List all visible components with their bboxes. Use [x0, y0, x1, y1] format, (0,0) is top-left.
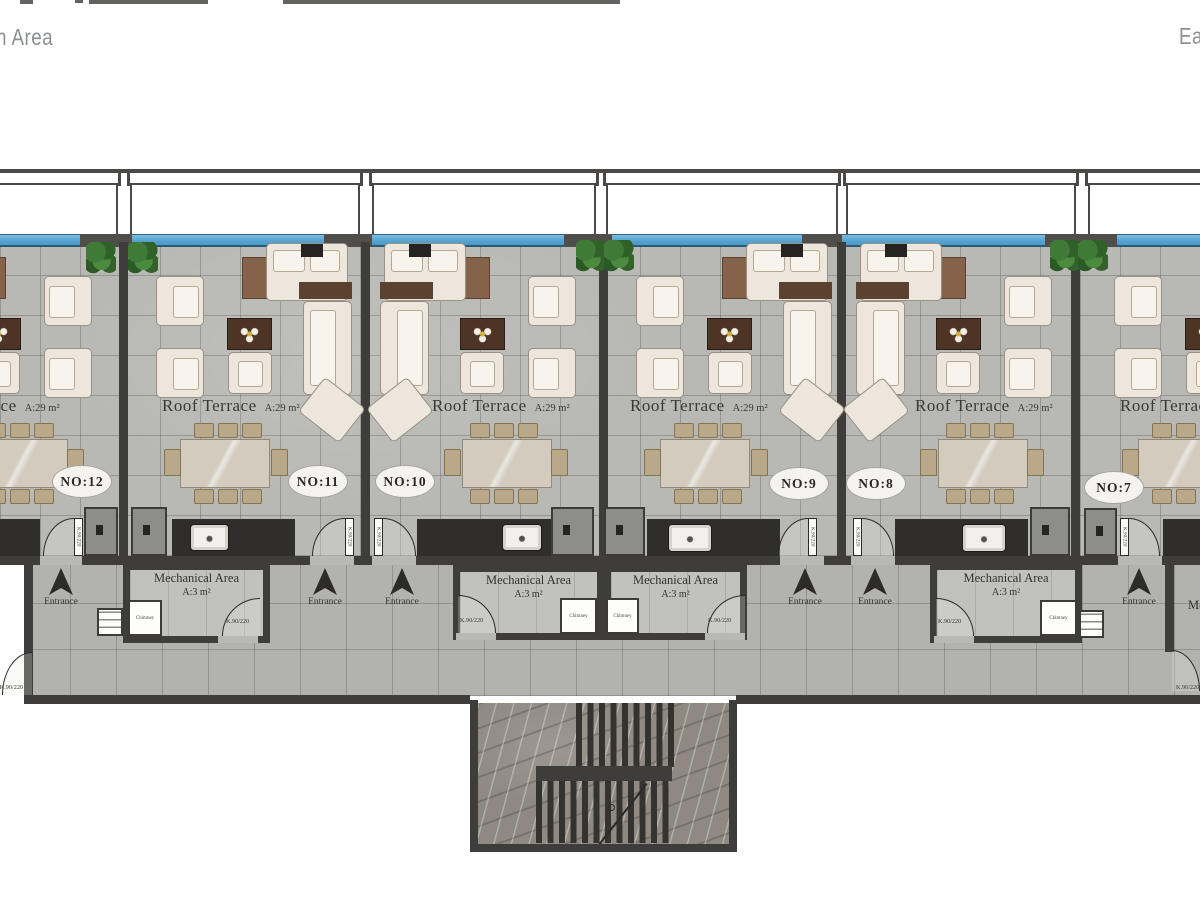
kitchenette-appliance	[885, 244, 907, 257]
dining-chair	[10, 489, 30, 504]
armchair-cushion	[1131, 286, 1157, 318]
mechanical-area-label: Mechanical Area	[453, 573, 604, 588]
sofa-cushion	[397, 310, 423, 386]
kitchen-counter	[647, 519, 780, 556]
mechanical-area-label: Mechanical Area	[1188, 598, 1200, 613]
dining-chair	[10, 423, 30, 438]
dining-chair	[194, 489, 214, 504]
faucet-icon	[1096, 526, 1103, 536]
coffee-table	[460, 318, 505, 350]
dining-chair	[0, 423, 6, 438]
sofa-cushion	[310, 310, 336, 386]
plant-icon	[604, 240, 634, 273]
balcony-parapet-box	[1088, 183, 1200, 236]
armchair	[1004, 276, 1052, 326]
ottoman-cushion	[238, 361, 263, 387]
stair-direction-marker	[608, 804, 615, 811]
dining-chair	[674, 489, 694, 504]
dining-chair	[1152, 423, 1172, 438]
mechanical-area-label: Mechanical Area	[123, 571, 270, 586]
mechanical-room-wall	[604, 565, 747, 572]
dining-chair	[994, 489, 1014, 504]
door-leaf: K.90/220	[345, 518, 354, 556]
plant-icon	[86, 242, 116, 275]
door-size-label: K.90/220	[347, 527, 353, 546]
ottoman	[0, 352, 20, 394]
dining-chair	[920, 449, 937, 476]
kitchenette-counter	[380, 282, 433, 299]
dining-chair	[644, 449, 661, 476]
coffee-table	[1185, 318, 1200, 350]
chimney-box: Chimney	[128, 600, 162, 636]
roof-terrace-label-text: Roof Terrace	[432, 396, 527, 415]
faucet-icon	[1042, 525, 1049, 535]
entrance-label: Entrance	[293, 597, 357, 609]
unit-divider-wall	[119, 242, 128, 556]
side-table	[464, 257, 490, 299]
armchair-cushion	[173, 358, 199, 390]
dining-table	[1138, 439, 1200, 488]
utility-box	[551, 507, 594, 556]
dining-chair	[194, 423, 214, 438]
kitchen-counter	[0, 519, 40, 556]
kitchenette-counter	[856, 282, 909, 299]
dining-chair	[518, 423, 538, 438]
ottoman-cushion	[718, 361, 743, 387]
door-opening	[780, 556, 824, 565]
door-size-label: K.90/220	[460, 617, 483, 624]
mechanical-room-wall	[123, 563, 270, 570]
sofa-cushion	[790, 310, 816, 386]
side-table	[722, 257, 748, 299]
entrance-label: Entrance	[370, 597, 434, 609]
roof-terrace-label: Roof TerraceA:29 m²	[162, 396, 300, 416]
unit-badge-no-7: NO:7	[1084, 471, 1144, 504]
sink	[962, 524, 1006, 552]
chimney-box: Chimney	[560, 598, 597, 634]
roof-eave-line	[0, 169, 1200, 173]
dining-chair	[722, 489, 742, 504]
dining-chair	[551, 449, 568, 476]
stairwell-wall	[470, 844, 737, 852]
dining-chair	[470, 489, 490, 504]
roof-terrace-area-text: A:29 m²	[535, 403, 570, 414]
door-size-label: K.90/220	[1176, 684, 1199, 691]
door-opening	[372, 556, 416, 565]
roof-terrace-area-text: A:29 m²	[733, 403, 768, 414]
door-leaf: K.90/220	[853, 518, 862, 556]
armchair-cushion	[49, 358, 75, 390]
roof-terrace-label: Roof TerraceA:29 m²	[630, 396, 768, 416]
top-edge-fragment	[89, 0, 208, 4]
mechanical-area-size: A:3 m²	[123, 587, 270, 598]
roof-terrace-label-text: Roof Terrace	[1120, 396, 1200, 415]
sofa-cushion	[873, 310, 899, 386]
kitchenette-appliance	[409, 244, 431, 257]
dining-chair	[0, 489, 6, 504]
door-size-label: K.90/220	[708, 617, 731, 624]
armchair	[636, 276, 684, 326]
balcony-connector-stub	[360, 172, 363, 186]
balcony-parapet-box	[130, 183, 360, 236]
dining-table	[938, 439, 1028, 488]
unit-divider-wall	[837, 242, 846, 556]
door-size-label: K.90/220	[1122, 527, 1128, 546]
faucet-icon	[616, 525, 623, 535]
door-leaf: K.90/220	[1120, 518, 1129, 556]
armchair-cushion	[653, 286, 679, 318]
dining-chair	[994, 423, 1014, 438]
armchair	[156, 276, 204, 326]
door-opening	[1118, 556, 1162, 565]
dining-chair	[218, 423, 238, 438]
armchair-cushion	[1131, 358, 1157, 390]
mechanical-room-wall	[453, 565, 604, 572]
balcony-connector-stub	[596, 172, 599, 186]
dining-chair	[698, 423, 718, 438]
balcony-parapet-box	[372, 183, 596, 236]
top-edge-fragment	[283, 0, 620, 4]
balcony-connector-stub	[603, 172, 606, 186]
roof-terrace-label: Roof TerraceA:29 m²	[915, 396, 1053, 416]
armchair	[636, 348, 684, 398]
entrance-label: Entrance	[1107, 597, 1171, 609]
balcony-connector-stub	[838, 172, 841, 186]
dining-chair	[242, 423, 262, 438]
door-opening	[310, 556, 354, 565]
dining-chair	[242, 489, 262, 504]
dining-chair	[518, 489, 538, 504]
unit-divider-wall	[361, 242, 370, 556]
balcony-connector-stub	[369, 172, 372, 186]
door-size-label: K.90/220	[76, 527, 82, 546]
kitchenette-counter	[779, 282, 832, 299]
armchair	[156, 348, 204, 398]
ottoman-cushion	[0, 361, 11, 387]
armchair-cushion	[533, 286, 559, 318]
top-edge-fragment	[75, 0, 83, 3]
roof-terrace-label: Roof TerraceA:29 m²	[0, 396, 60, 416]
dining-chair	[470, 423, 490, 438]
balcony-connector-stub	[1076, 172, 1079, 186]
roof-terrace-label-text: Roof Terrace	[162, 396, 257, 415]
stair-landing	[536, 766, 672, 781]
armchair-cushion	[1009, 286, 1035, 318]
door-size-label: K.90/220	[0, 684, 23, 691]
dining-chair	[271, 449, 288, 476]
sink	[502, 524, 542, 551]
plant-icon	[1078, 240, 1108, 273]
armchair	[1114, 276, 1162, 326]
armchair-cushion	[173, 286, 199, 318]
armchair	[1114, 348, 1162, 398]
kitchen-counter	[1163, 519, 1200, 556]
roof-terrace-floor-plan: Roof TerraceA:29 m²NO:12Roof TerraceA:29…	[0, 0, 1200, 900]
door-opening	[456, 633, 496, 640]
balcony-connector-stub	[127, 172, 130, 186]
armchair	[44, 348, 92, 398]
plant-icon	[1050, 240, 1080, 273]
ottoman-cushion	[1196, 361, 1200, 387]
door-size-label: K.90/220	[938, 618, 961, 625]
dining-chair	[751, 449, 768, 476]
armchair-cushion	[533, 358, 559, 390]
dining-chair	[218, 489, 238, 504]
door-leaf: K.90/220	[74, 518, 83, 556]
dining-table	[180, 439, 270, 488]
faucet-icon	[96, 525, 103, 535]
roof-terrace-label: Roof TerraceA:29 m²	[432, 396, 570, 416]
plant-icon	[576, 240, 606, 273]
dining-chair	[34, 423, 54, 438]
dining-chair	[164, 449, 181, 476]
unit-badge-no-12: NO:12	[52, 465, 112, 498]
door-size-label: K.90/220	[810, 527, 816, 546]
roof-terrace-label-text: Roof Terrace	[630, 396, 725, 415]
side-table	[940, 257, 966, 299]
plant-icon	[128, 242, 158, 275]
unit-badge-no-9: NO:9	[769, 467, 829, 500]
balcony-parapet-box	[606, 183, 838, 236]
dining-chair	[698, 489, 718, 504]
entrance-label: Entrance	[773, 597, 837, 609]
side-table	[242, 257, 268, 299]
stairwell-wall	[729, 700, 737, 852]
sofa-pillow	[904, 250, 934, 272]
dining-chair	[1027, 449, 1044, 476]
chimney-box: Chimney	[1040, 600, 1077, 636]
dining-chair	[674, 423, 694, 438]
dining-chair	[1176, 489, 1196, 504]
utility-box	[84, 507, 118, 556]
side-table	[0, 257, 6, 299]
ottoman-cushion	[470, 361, 495, 387]
utility-box	[1030, 507, 1070, 556]
mechanical-room-wall	[930, 563, 1082, 570]
door-leaf: K.90/220	[808, 518, 817, 556]
stair-treads-lower	[536, 781, 672, 843]
mechanical-area-label: Mechanical Area	[604, 573, 747, 588]
armchair-cushion	[653, 358, 679, 390]
corridor-bottom-wall	[736, 695, 1200, 704]
dining-table	[660, 439, 750, 488]
unit-badge-no-11: NO:11	[288, 465, 348, 498]
ottoman	[228, 352, 272, 394]
dining-chair	[34, 489, 54, 504]
door-opening	[705, 633, 745, 640]
dining-chair	[494, 423, 514, 438]
door-leaf: K.90/220	[374, 518, 383, 556]
door-size-label: K.90/220	[226, 618, 249, 625]
balcony-parapet-box	[0, 183, 118, 236]
coffee-table	[0, 318, 21, 350]
coffee-table	[227, 318, 272, 350]
sink	[190, 524, 229, 551]
balcony-connector-stub	[1085, 172, 1088, 186]
balcony-connector-stub	[843, 172, 846, 186]
kitchenette-appliance	[301, 244, 323, 257]
dining-chair	[1152, 489, 1172, 504]
faucet-icon	[563, 525, 570, 535]
roof-terrace-area-text: A:29 m²	[265, 403, 300, 414]
floor-plan-page: n Area Ea Roof TerraceA:29 m²NO:12Roof T…	[0, 0, 1200, 900]
chimney-vent-box	[1079, 610, 1104, 638]
roof-terrace-label-text: Roof Terrace	[0, 396, 17, 415]
ottoman	[708, 352, 752, 394]
coffee-table	[936, 318, 981, 350]
unit-badge-no-10: NO:10	[375, 465, 435, 498]
mechanical-area-size: A:3 m²	[930, 587, 1082, 598]
door-size-label: K.90/220	[855, 527, 861, 546]
sink	[668, 524, 712, 552]
stair-treads-upper	[576, 703, 676, 767]
dining-chair	[946, 423, 966, 438]
utility-box	[604, 507, 645, 556]
corridor-bottom-wall	[24, 695, 470, 704]
balcony-connector-stub	[118, 172, 121, 186]
door-opening	[851, 556, 895, 565]
sofa-pillow	[428, 250, 458, 272]
unit-divider-wall	[1071, 242, 1080, 556]
armchair	[528, 348, 576, 398]
coffee-table	[707, 318, 752, 350]
dining-chair	[1176, 423, 1196, 438]
ottoman	[936, 352, 980, 394]
chimney-vent-box	[97, 608, 123, 636]
balcony-parapet-box	[846, 183, 1076, 236]
chimney-box: Chimney	[606, 598, 639, 634]
dining-table	[462, 439, 552, 488]
armchair-cushion	[1009, 358, 1035, 390]
dining-chair	[494, 489, 514, 504]
kitchenette-appliance	[781, 244, 803, 257]
entrance-label: Entrance	[29, 597, 93, 609]
dining-chair	[444, 449, 461, 476]
armchair-cushion	[49, 286, 75, 318]
armchair	[528, 276, 576, 326]
ottoman	[1186, 352, 1200, 394]
door-opening	[40, 556, 82, 565]
door-opening	[218, 636, 258, 643]
armchair	[1004, 348, 1052, 398]
armchair	[44, 276, 92, 326]
roof-terrace-label: Roof TerraceA:29 m²	[1120, 396, 1200, 416]
roof-terrace-area-text: A:29 m²	[1018, 403, 1053, 414]
faucet-icon	[143, 525, 150, 535]
dining-chair	[946, 489, 966, 504]
door-opening	[934, 636, 974, 643]
dining-chair	[970, 489, 990, 504]
utility-box	[1084, 508, 1117, 556]
stairwell-wall	[470, 700, 478, 852]
ottoman-cushion	[946, 361, 971, 387]
kitchenette-counter	[299, 282, 352, 299]
roof-terrace-label-text: Roof Terrace	[915, 396, 1010, 415]
door-size-label: K.90/220	[376, 527, 382, 546]
roof-terrace-area-text: A:29 m²	[25, 403, 60, 414]
dining-chair	[722, 423, 742, 438]
utility-box	[131, 507, 167, 556]
top-edge-fragment	[20, 0, 33, 4]
mechanical-area-label: Mechanical Area	[930, 571, 1082, 586]
unit-badge-no-8: NO:8	[846, 467, 906, 500]
dining-chair	[970, 423, 990, 438]
entrance-label: Entrance	[843, 597, 907, 609]
ottoman	[460, 352, 504, 394]
